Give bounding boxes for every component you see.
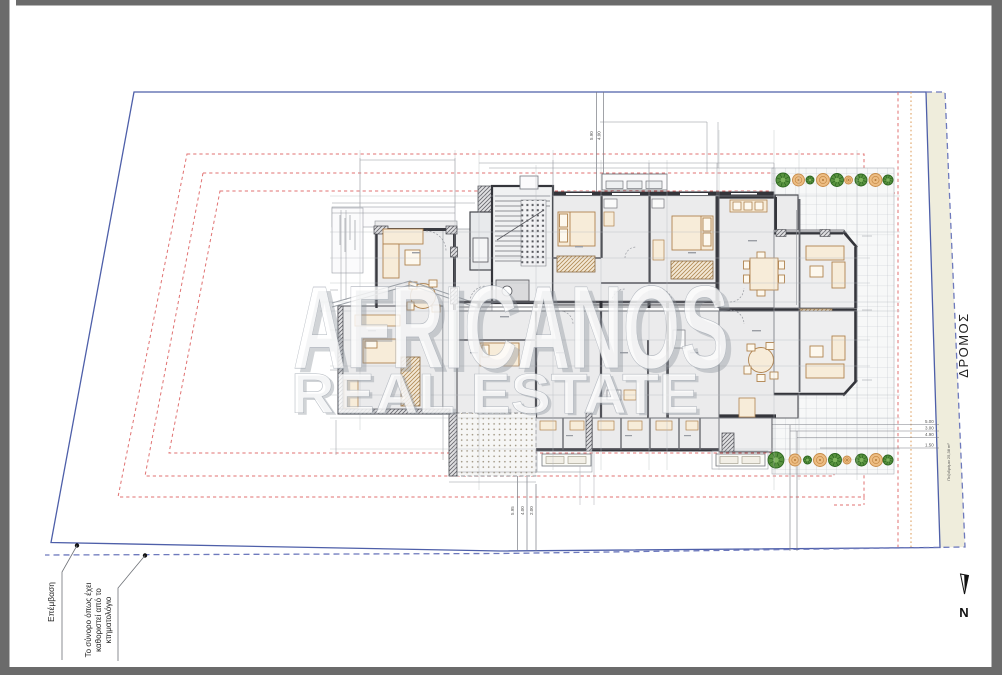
svg-text:κτηματολόγιο: κτηματολόγιο — [104, 596, 113, 643]
svg-text:N: N — [959, 605, 968, 620]
svg-text:καθοριστεί από το: καθοριστεί από το — [94, 588, 103, 652]
svg-text:5.95: 5.95 — [510, 506, 515, 515]
svg-text:5.00: 5.00 — [925, 419, 934, 424]
svg-text:4.90: 4.90 — [925, 432, 934, 437]
svg-text:4.00: 4.00 — [520, 506, 525, 515]
svg-text:4.00: 4.00 — [597, 131, 602, 140]
svg-text:5.90: 5.90 — [589, 131, 594, 140]
svg-text:ΔΡΟΜΟΣ: ΔΡΟΜΟΣ — [956, 312, 971, 377]
svg-text:3.00: 3.00 — [925, 426, 934, 431]
svg-text:Επέμβαση: Επέμβαση — [46, 582, 56, 622]
svg-text:2.00: 2.00 — [529, 506, 534, 515]
svg-text:REAL ESTATE: REAL ESTATE — [291, 362, 699, 426]
svg-text:1.50: 1.50 — [925, 443, 934, 448]
svg-text:Το σύνορο όπως έχει: Το σύνορο όπως έχει — [84, 582, 93, 657]
svg-text:Πεζοδρόμιο 25,38 m²: Πεζοδρόμιο 25,38 m² — [946, 443, 951, 481]
